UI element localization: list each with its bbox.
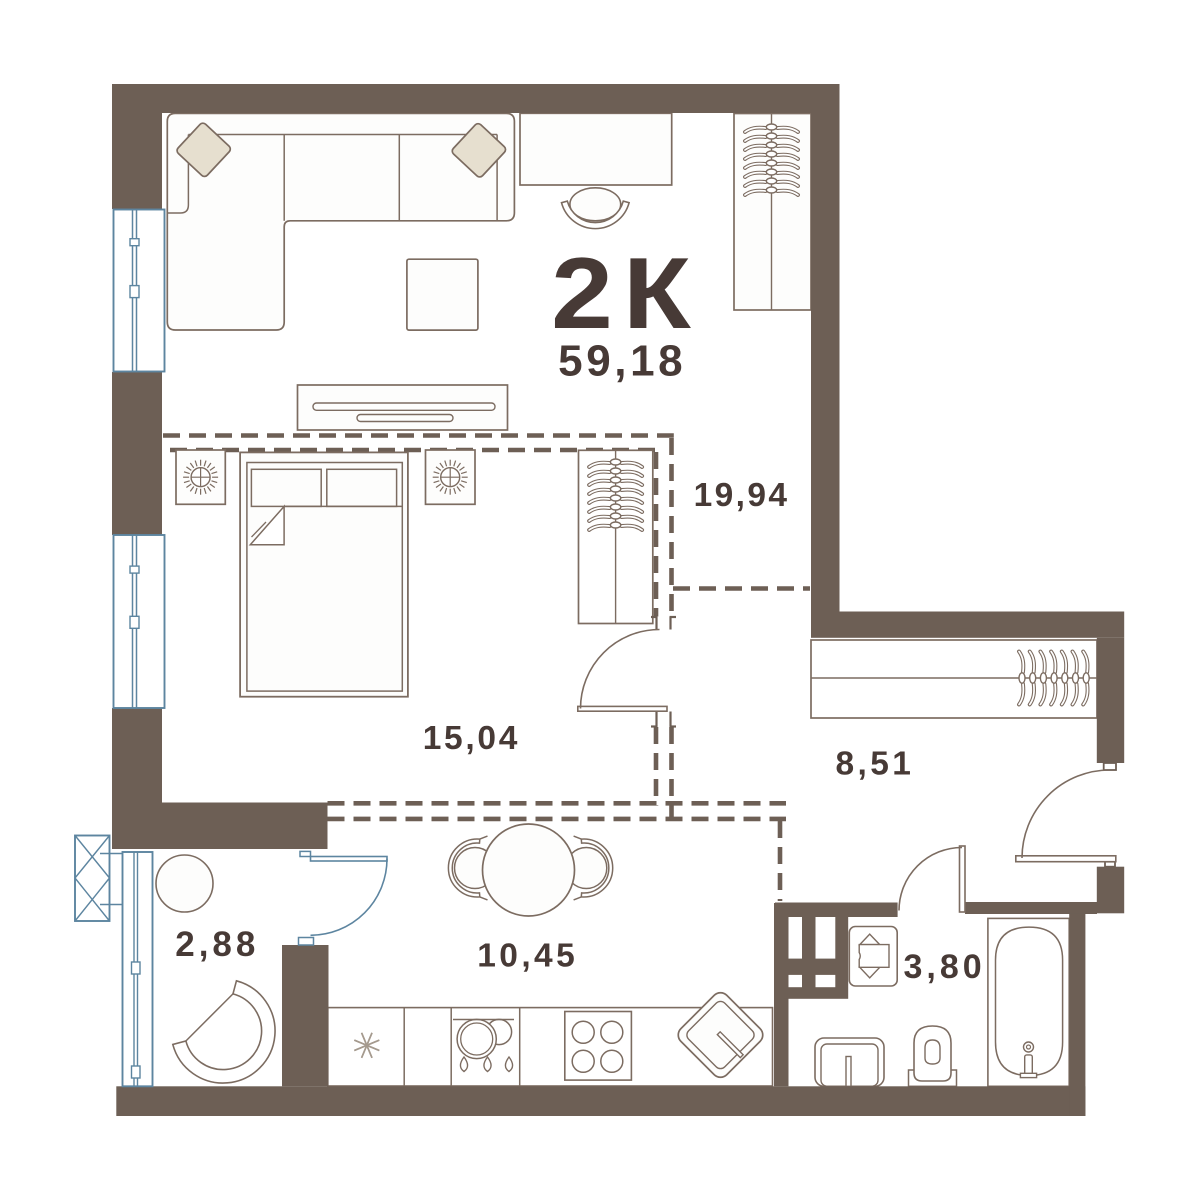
svg-text:10,45: 10,45	[477, 938, 578, 975]
svg-text:2: 2	[551, 238, 613, 350]
svg-text:К: К	[623, 238, 691, 350]
svg-text:3,80: 3,80	[904, 948, 986, 986]
svg-text:59,18: 59,18	[558, 336, 686, 385]
svg-text:2,88: 2,88	[175, 925, 259, 964]
svg-text:15,04: 15,04	[423, 720, 520, 757]
svg-text:19,94: 19,94	[694, 477, 790, 514]
svg-text:8,51: 8,51	[835, 745, 914, 782]
